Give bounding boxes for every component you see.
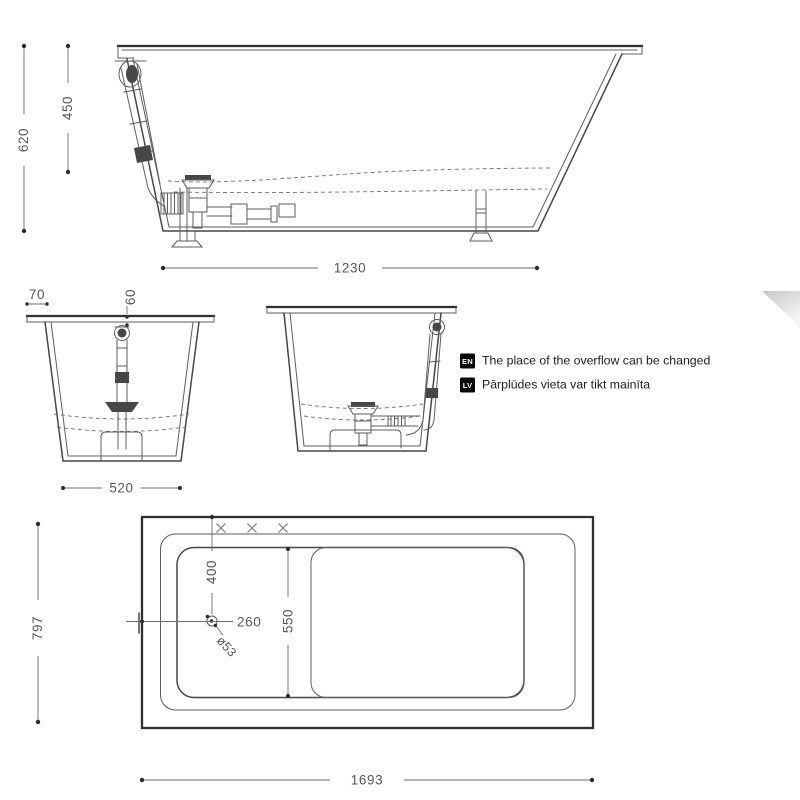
overflow-note-en: EN The place of the overflow can be chan… (460, 354, 710, 369)
lang-badge-en-label: EN (462, 357, 473, 366)
floor-dashed (54, 414, 189, 432)
basin-outline (177, 548, 524, 698)
end-view-left (27, 316, 214, 461)
waterline-dashed (168, 168, 552, 182)
dimension-1693: 1693 (140, 771, 594, 788)
floor-edge-dashed (174, 189, 547, 193)
dim-520-label: 520 (109, 481, 133, 496)
dim-550-label: 550 (281, 609, 296, 633)
dim-400-label: 400 (204, 560, 219, 584)
rim-outer-edge (142, 517, 593, 728)
overflow-note-lv: LV Pārplūdes vieta var tikt mainīta (460, 378, 650, 393)
rim-inner-edge (161, 534, 576, 710)
overflow-pipe-side (115, 61, 164, 206)
dimension-70: 70 (25, 287, 48, 306)
dim-797-label: 797 (30, 616, 45, 640)
lang-badge-lv-label: LV (463, 381, 473, 390)
dimension-620: 620 (16, 44, 31, 233)
dim-450-label: 450 (60, 96, 75, 120)
right-foot (470, 191, 492, 241)
dim-1230-label: 1230 (334, 261, 366, 276)
left-foot (172, 188, 202, 247)
overflow-position-mark (279, 524, 288, 533)
dimension-550: 550 (280, 547, 296, 698)
end-view-right (267, 307, 456, 451)
note-lv-text: Pārplūdes vieta var tikt mainīta (482, 378, 650, 392)
drain-plan (206, 615, 218, 628)
dimension-797: 797 (30, 522, 45, 724)
dimension-drain-diameter: ø53 (214, 626, 240, 660)
overflow-pipe-center (105, 326, 139, 450)
inner-wall (51, 322, 193, 456)
dimension-260: 260 (126, 615, 261, 630)
dim-diameter-label: ø53 (214, 634, 240, 660)
dim-260-label: 260 (237, 615, 261, 630)
dimension-450: 450 (60, 44, 75, 174)
overflow-position-mark (248, 524, 257, 533)
tub-inner-wall (133, 54, 616, 227)
outer-wall (45, 322, 199, 461)
dimension-520: 520 (61, 481, 182, 496)
tub-outer-wall (127, 54, 622, 231)
plan-view (139, 517, 593, 728)
page-corner-fold (762, 291, 800, 327)
side-view (115, 46, 642, 247)
overflow-position-marks (217, 524, 288, 533)
dimension-400: 400 (203, 515, 219, 614)
bathtub-technical-drawing-page: 620 450 1230 70 (0, 0, 800, 800)
drain-assembly-side (182, 175, 295, 228)
seat-section-outline (311, 548, 524, 698)
dim-1693-label: 1693 (351, 773, 383, 788)
dimension-60: 60 (123, 289, 138, 327)
dim-70-label: 70 (29, 287, 45, 302)
note-en-text: The place of the overflow can be changed (482, 354, 710, 368)
sump-recess (101, 432, 142, 461)
overflow-position-mark (217, 524, 226, 533)
dim-620-label: 620 (16, 128, 31, 152)
dim-60-label: 60 (123, 289, 138, 305)
tub-rim-edges (118, 46, 642, 58)
dimension-1230: 1230 (161, 261, 539, 276)
